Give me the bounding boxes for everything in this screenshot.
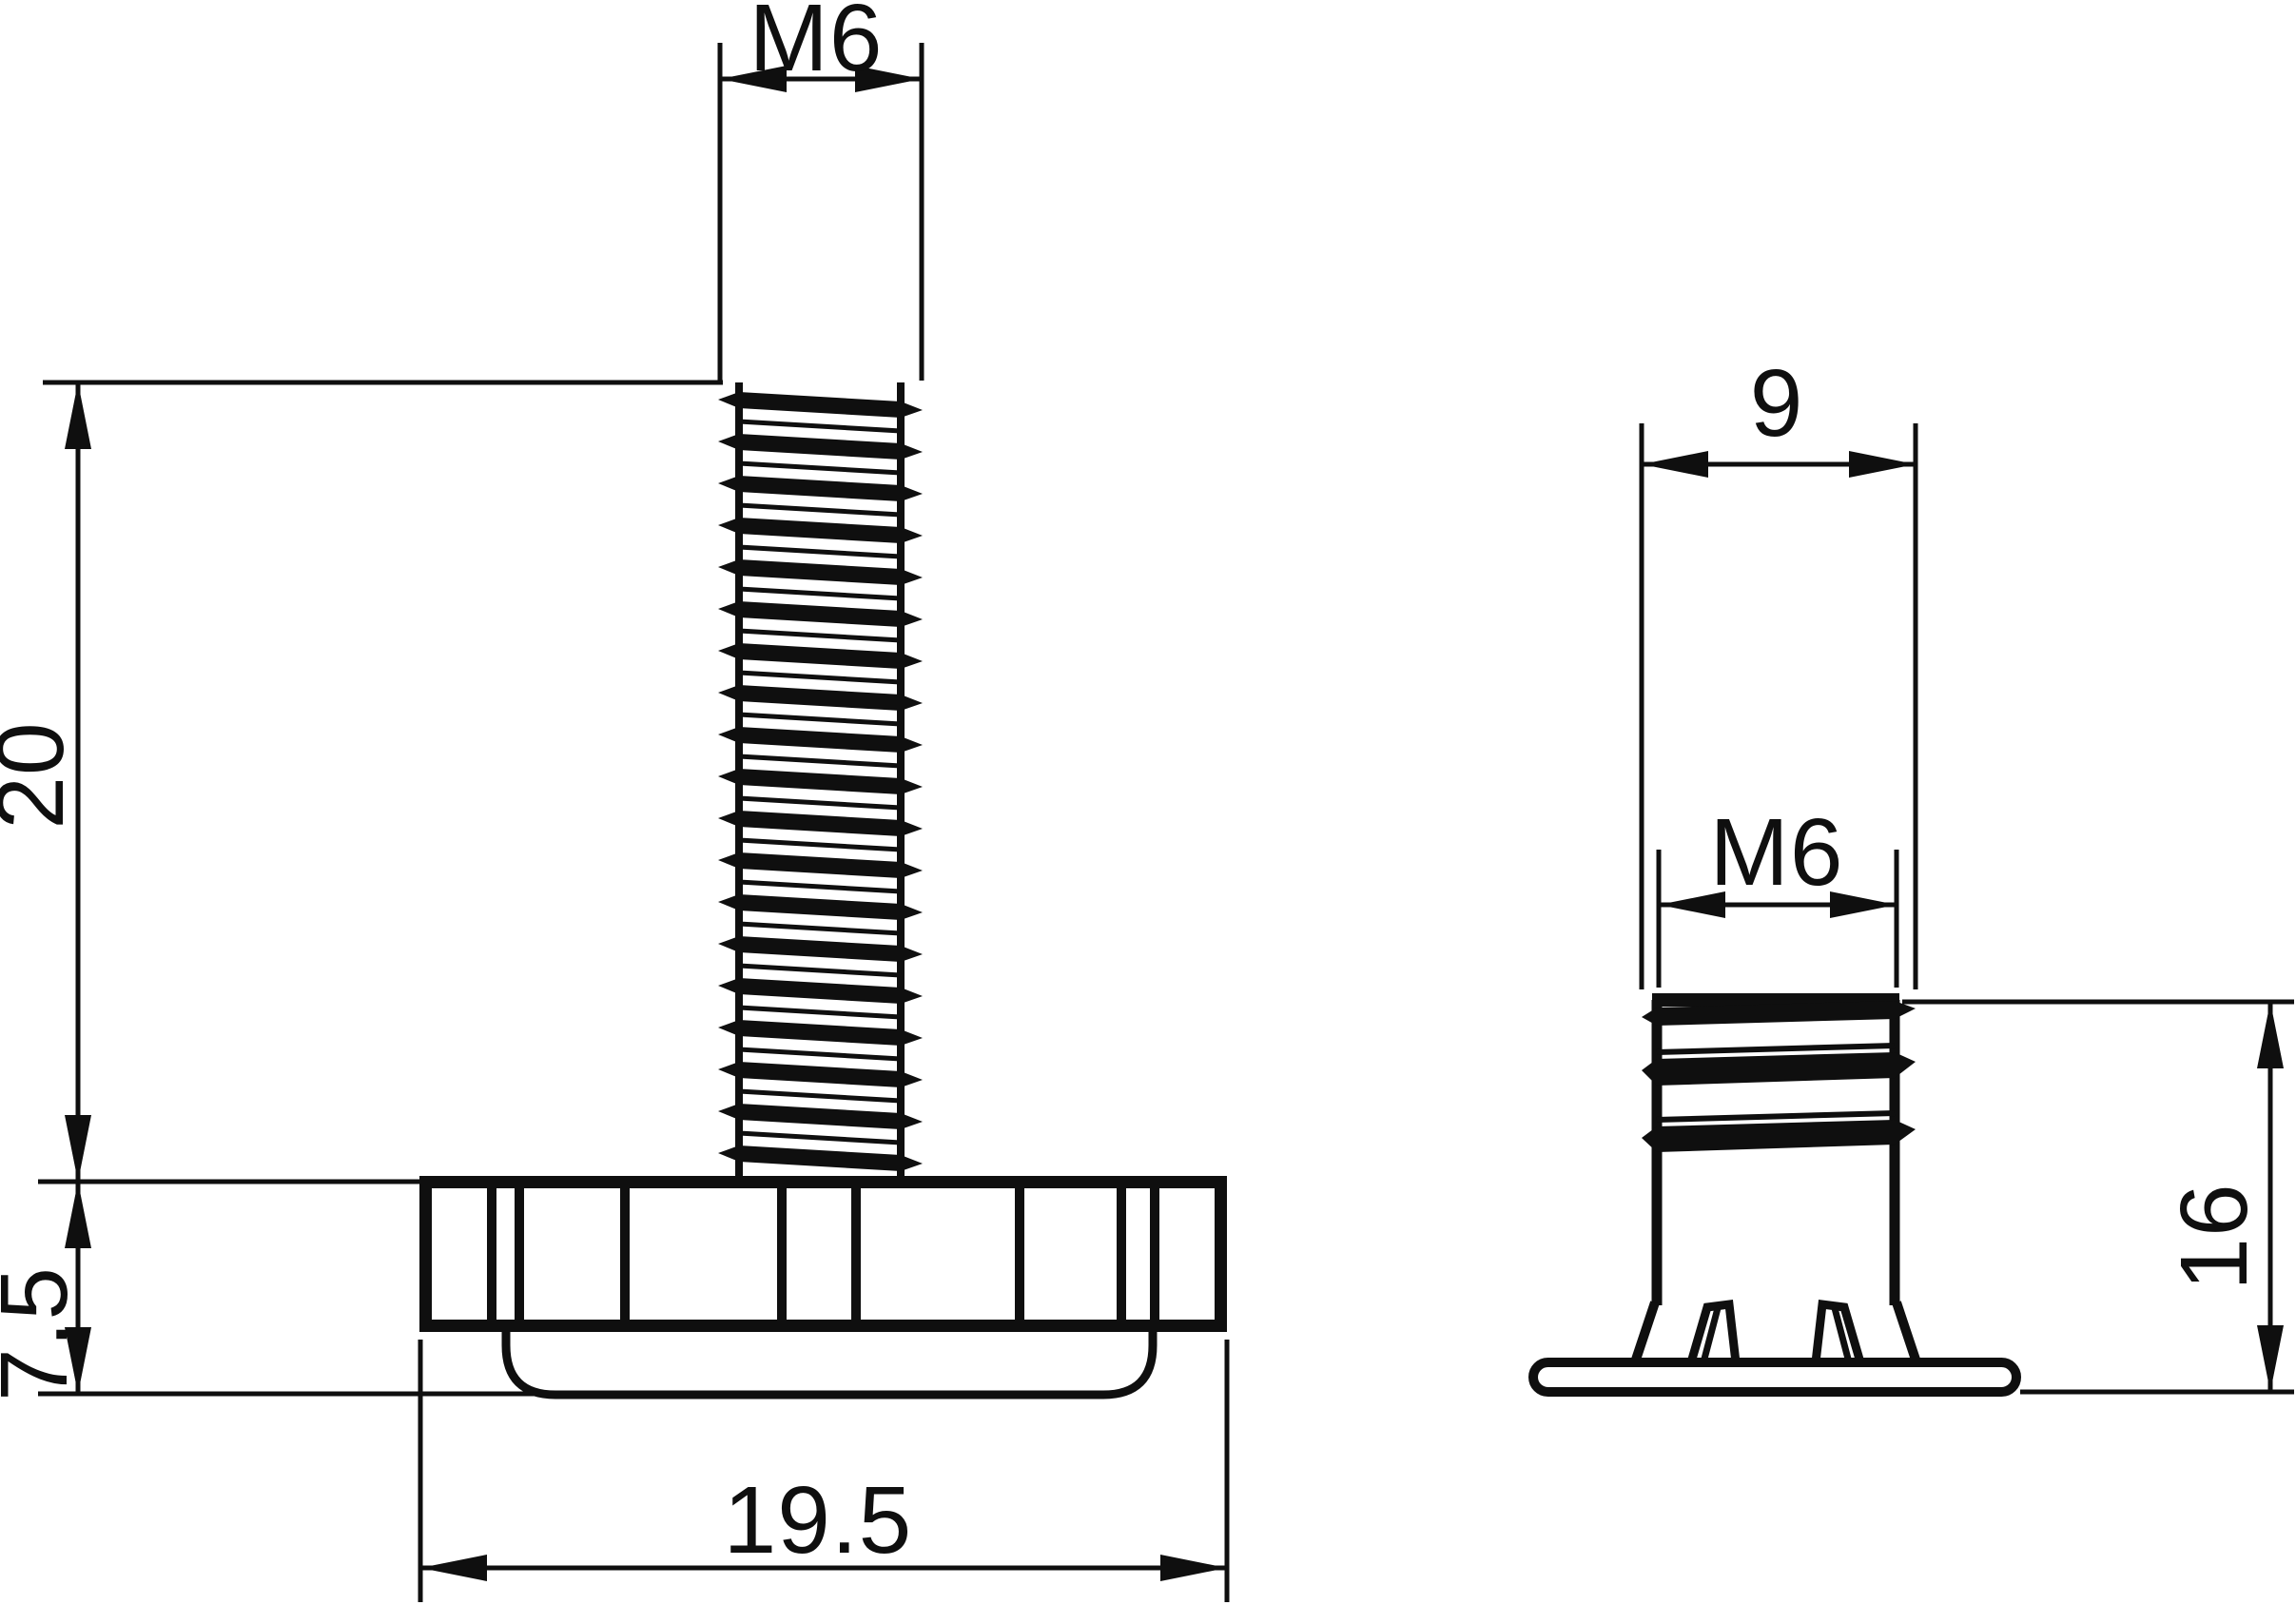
dim-label-insert-width: 9 — [1750, 350, 1804, 457]
knob-dome — [506, 1332, 1153, 1395]
stud-thread-crests — [718, 392, 923, 1171]
insert-legs — [1635, 1302, 1917, 1362]
dim-label-head-width: 19.5 — [724, 1467, 913, 1574]
dim-label-thread-length: 20 — [0, 721, 84, 829]
insert-side-view — [1533, 1000, 2016, 1392]
technical-drawing: M6 20 7.5 19.5 — [0, 0, 2296, 1605]
dim-label-stud-thread: M6 — [749, 0, 884, 91]
stud-side-view — [426, 382, 1221, 1395]
dim-label-head-height: 7.5 — [0, 1266, 88, 1401]
insert-barb-rings — [1642, 1001, 1916, 1152]
drawing-canvas: M6 20 7.5 19.5 — [0, 0, 2296, 1605]
insert-base-flange — [1533, 1362, 2016, 1392]
stud-thread — [718, 382, 923, 1178]
dim-stud-thread-m6: M6 — [720, 0, 922, 381]
dim-insert-thread-m6: M6 — [1659, 799, 1897, 988]
dim-label-insert-height: 16 — [2161, 1183, 2267, 1290]
dim-stud-head-width-19-5: 19.5 — [420, 1340, 1227, 1602]
dim-insert-height-16: 16 — [1902, 1002, 2294, 1392]
dim-label-insert-thread: M6 — [1710, 799, 1844, 906]
dim-stud-thread-length-20: 20 — [0, 382, 723, 1182]
stud-knob — [426, 1183, 1221, 1396]
